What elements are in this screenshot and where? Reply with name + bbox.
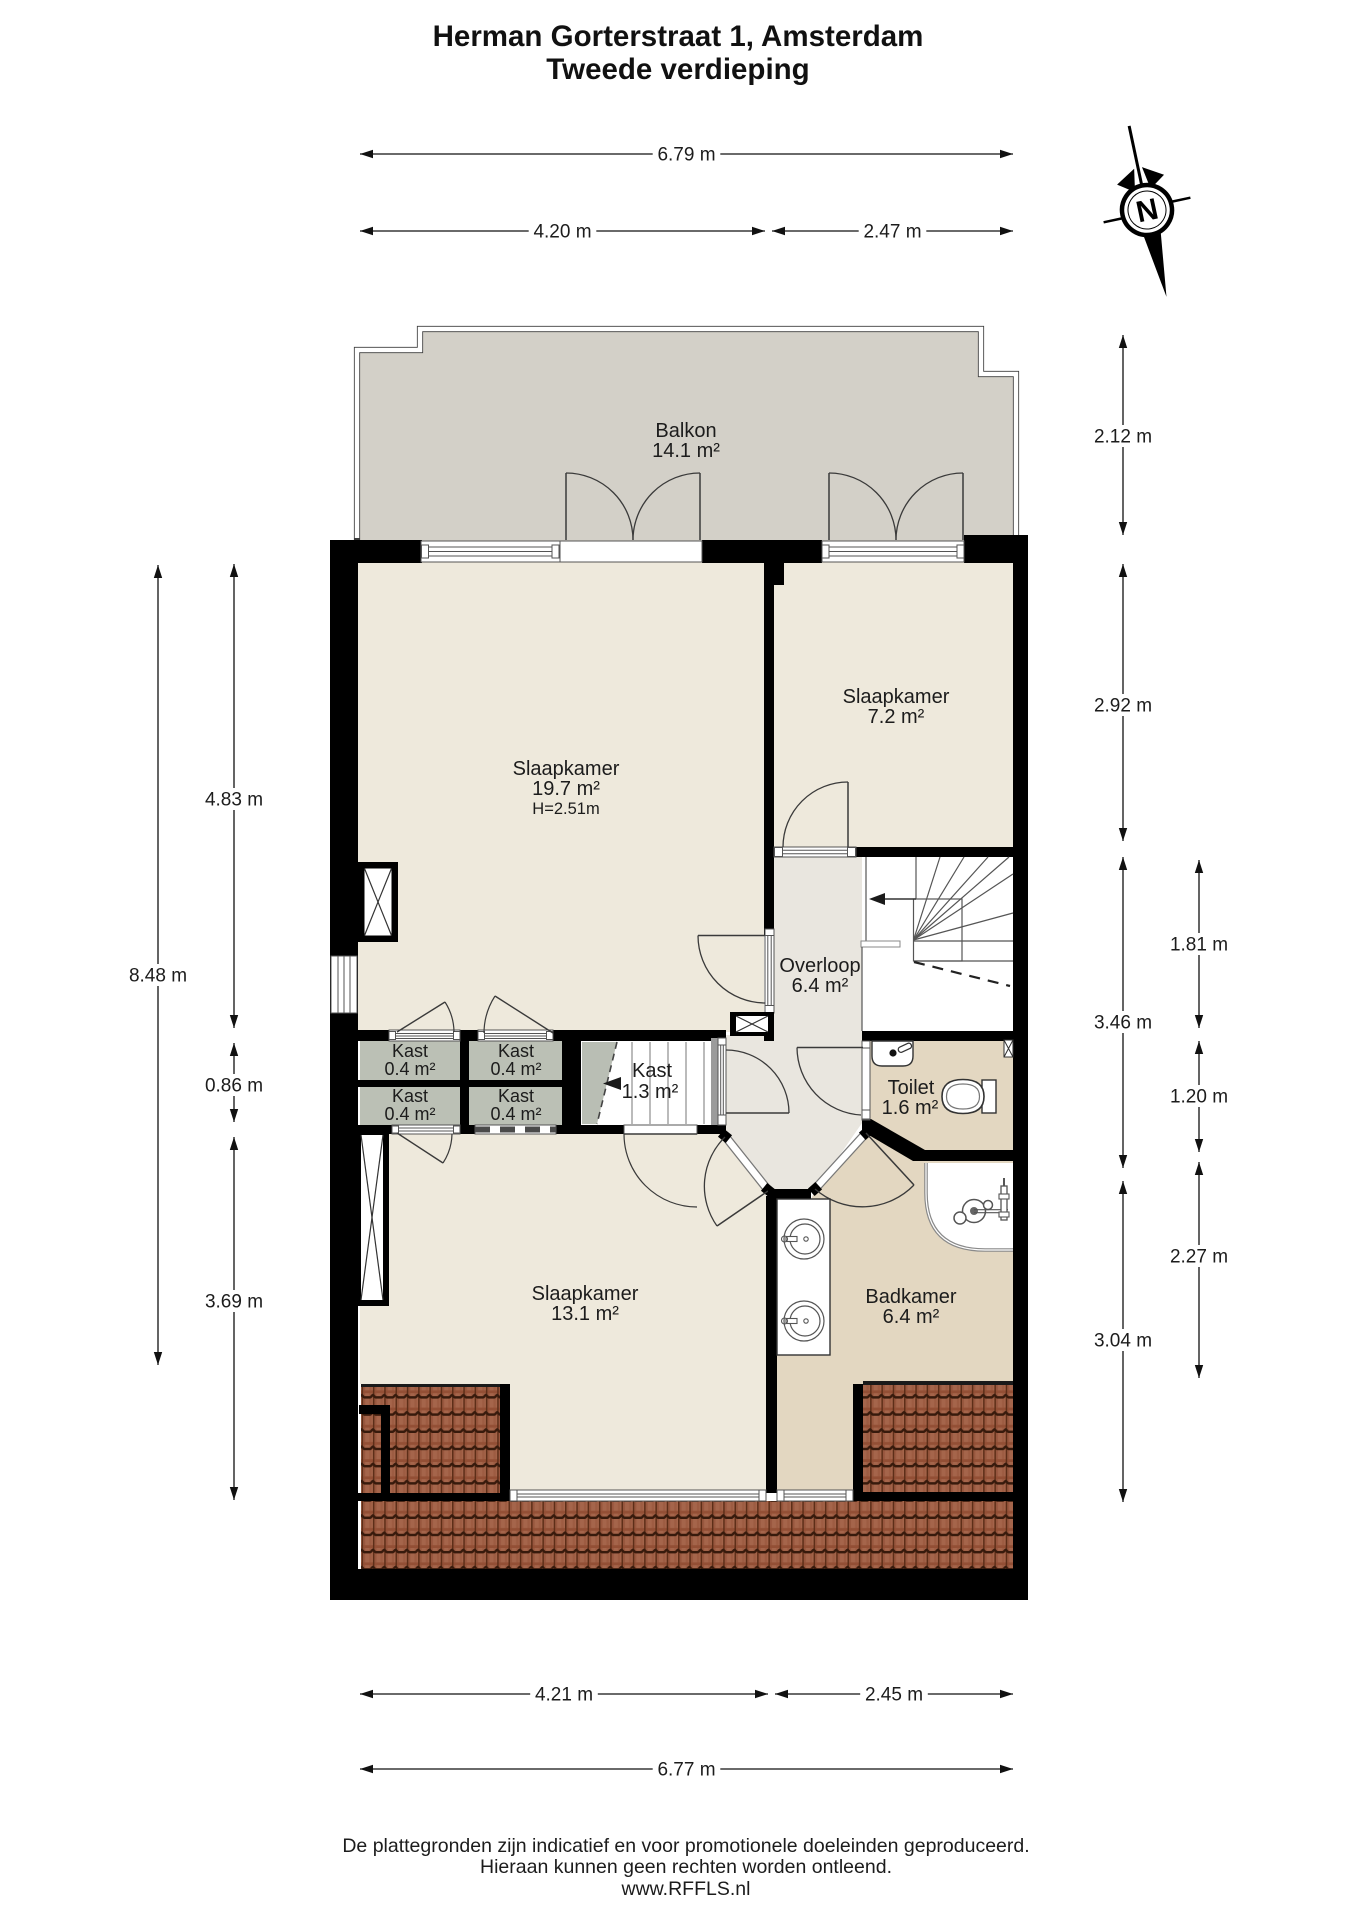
svg-text:6.77 m: 6.77 m [657, 1760, 715, 1781]
svg-text:14.1 m²: 14.1 m² [652, 440, 720, 462]
svg-text:6.79 m: 6.79 m [657, 145, 715, 166]
svg-text:Overloop: Overloop [779, 955, 860, 977]
svg-text:De plattegronden zijn indicati: De plattegronden zijn indicatief en voor… [342, 1835, 1029, 1857]
svg-text:2.12 m: 2.12 m [1094, 427, 1152, 448]
svg-text:0.4 m²: 0.4 m² [384, 1059, 435, 1079]
svg-text:6.4 m²: 6.4 m² [883, 1306, 940, 1328]
svg-text:Slaapkamer: Slaapkamer [513, 758, 620, 780]
svg-text:Kast: Kast [498, 1041, 534, 1061]
svg-text:0.4 m²: 0.4 m² [384, 1104, 435, 1124]
svg-text:H=2.51m: H=2.51m [532, 800, 599, 818]
svg-text:1.6 m²: 1.6 m² [882, 1097, 939, 1119]
svg-text:Toilet: Toilet [888, 1077, 935, 1099]
svg-text:Kast: Kast [392, 1041, 428, 1061]
svg-text:8.48 m: 8.48 m [129, 966, 187, 987]
svg-text:19.7 m²: 19.7 m² [532, 778, 600, 800]
svg-text:Slaapkamer: Slaapkamer [843, 686, 950, 708]
svg-text:0.4 m²: 0.4 m² [490, 1059, 541, 1079]
svg-text:2.47 m: 2.47 m [863, 222, 921, 243]
svg-text:0.4 m²: 0.4 m² [490, 1104, 541, 1124]
svg-text:Hieraan kunnen geen rechten wo: Hieraan kunnen geen rechten worden ontle… [480, 1856, 892, 1878]
svg-text:Balkon: Balkon [655, 420, 716, 442]
svg-text:Slaapkamer: Slaapkamer [532, 1283, 639, 1305]
svg-text:Kast: Kast [392, 1086, 428, 1106]
svg-text:2.45 m: 2.45 m [865, 1685, 923, 1706]
svg-text:2.92 m: 2.92 m [1094, 696, 1152, 717]
svg-text:3.69 m: 3.69 m [205, 1292, 263, 1313]
svg-text:2.27 m: 2.27 m [1170, 1247, 1228, 1268]
svg-text:1.20 m: 1.20 m [1170, 1087, 1228, 1108]
svg-text:0.86 m: 0.86 m [205, 1076, 263, 1097]
svg-text:Kast: Kast [632, 1060, 672, 1082]
svg-text:www.RFFLS.nl: www.RFFLS.nl [621, 1878, 751, 1900]
svg-text:1.3 m²: 1.3 m² [622, 1081, 679, 1103]
svg-text:4.83 m: 4.83 m [205, 790, 263, 811]
svg-text:3.46 m: 3.46 m [1094, 1013, 1152, 1034]
svg-text:Kast: Kast [498, 1086, 534, 1106]
svg-text:Tweede verdieping: Tweede verdieping [546, 53, 809, 86]
svg-text:4.21 m: 4.21 m [535, 1685, 593, 1706]
svg-text:1.81 m: 1.81 m [1170, 935, 1228, 956]
svg-text:13.1 m²: 13.1 m² [551, 1303, 619, 1325]
svg-text:6.4 m²: 6.4 m² [792, 975, 849, 997]
svg-text:Badkamer: Badkamer [865, 1286, 956, 1308]
svg-text:3.04 m: 3.04 m [1094, 1331, 1152, 1352]
svg-text:7.2 m²: 7.2 m² [868, 706, 925, 728]
svg-text:4.20 m: 4.20 m [533, 222, 591, 243]
svg-text:Herman Gorterstraat 1, Amsterd: Herman Gorterstraat 1, Amsterdam [433, 20, 924, 53]
